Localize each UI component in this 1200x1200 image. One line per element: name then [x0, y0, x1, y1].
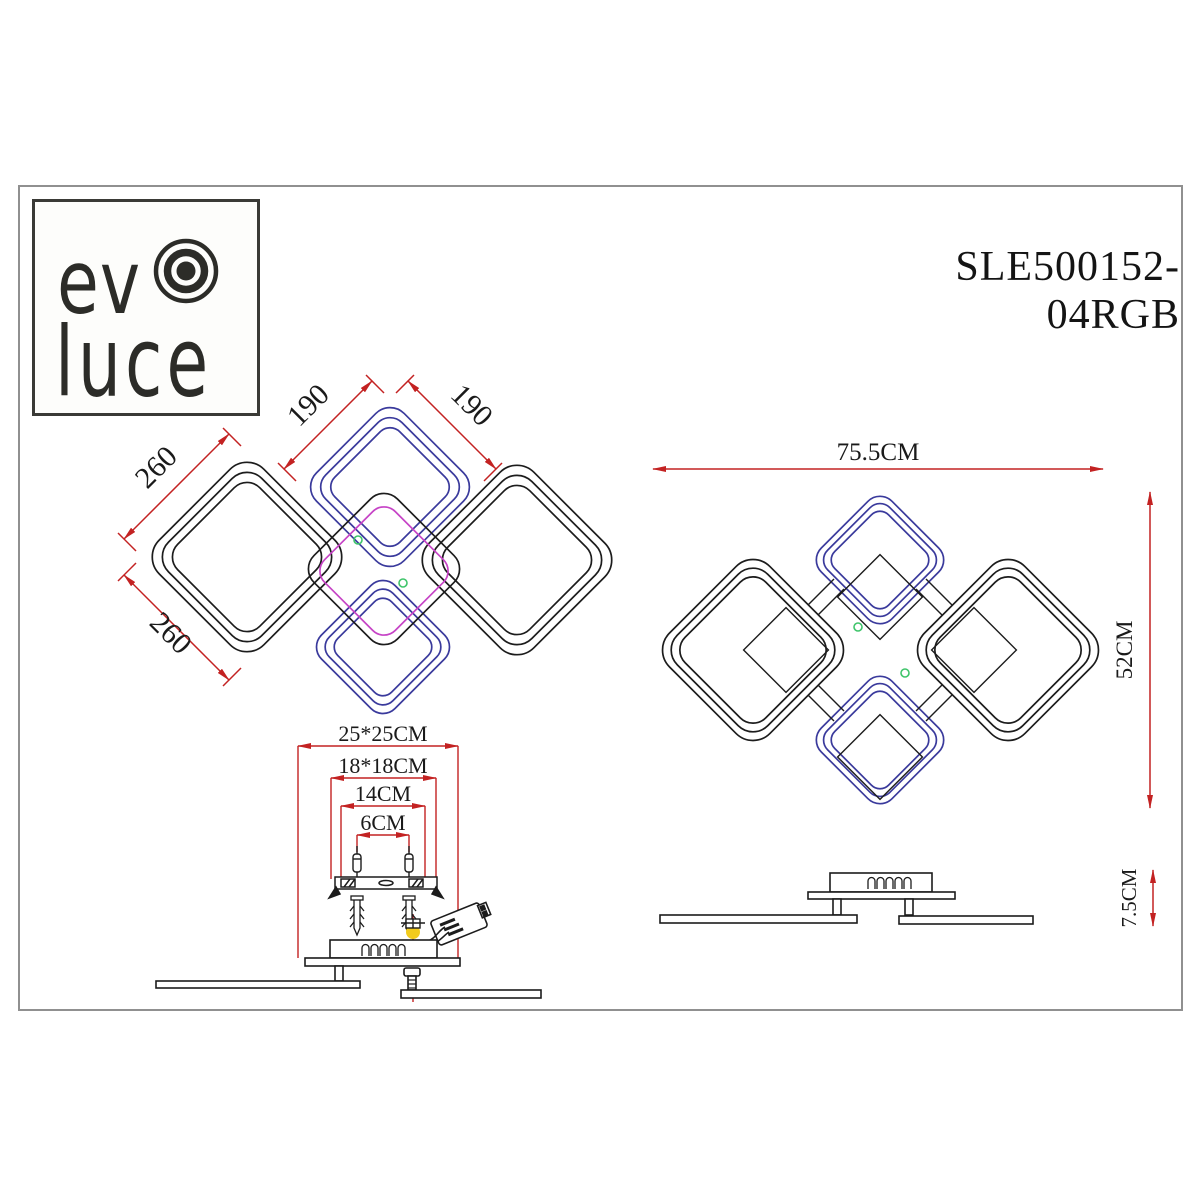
- plan-hole-marker: [901, 669, 909, 677]
- plan-ring-top: [809, 489, 950, 639]
- wall-anchors: [350, 896, 416, 935]
- mounting-screws: [353, 846, 413, 877]
- wire-terminal: [401, 919, 425, 928]
- front-ring-top: [302, 399, 477, 574]
- dim-label-holes: 14CM: [355, 781, 411, 806]
- side-view: 7.5CM: [660, 868, 1153, 927]
- front-hole-marker: [399, 579, 407, 587]
- front-ring-bottom: [309, 573, 456, 720]
- plan-view: 75.5CM 52CM: [653, 439, 1150, 811]
- technical-drawing: 190 190 260 260: [0, 0, 1200, 1200]
- plan-ring-bottom: [809, 669, 950, 810]
- dim-label-260-lower: 260: [143, 606, 198, 661]
- plan-ring-right: [908, 550, 1109, 751]
- plan-ring-connectors: [808, 579, 952, 721]
- mounting-fixture-base: [156, 940, 541, 998]
- dim-label-outer: 25*25CM: [338, 721, 427, 746]
- plan-ring-left: [653, 550, 854, 751]
- dim-label-width: 75.5CM: [837, 439, 920, 466]
- mounting-bracket: [329, 877, 443, 898]
- dim-label-bracket: 18*18CM: [338, 753, 427, 778]
- dim-label-fixture-height: 7.5CM: [1117, 868, 1141, 927]
- mounting-view: 25*25CM 18*18CM 14CM 6CM: [156, 721, 541, 1002]
- plan-hole-marker: [854, 623, 862, 631]
- dim-label-height: 52CM: [1112, 621, 1137, 680]
- dim-label-screws: 6CM: [360, 810, 405, 835]
- front-view: 190 190 260 260: [118, 375, 622, 721]
